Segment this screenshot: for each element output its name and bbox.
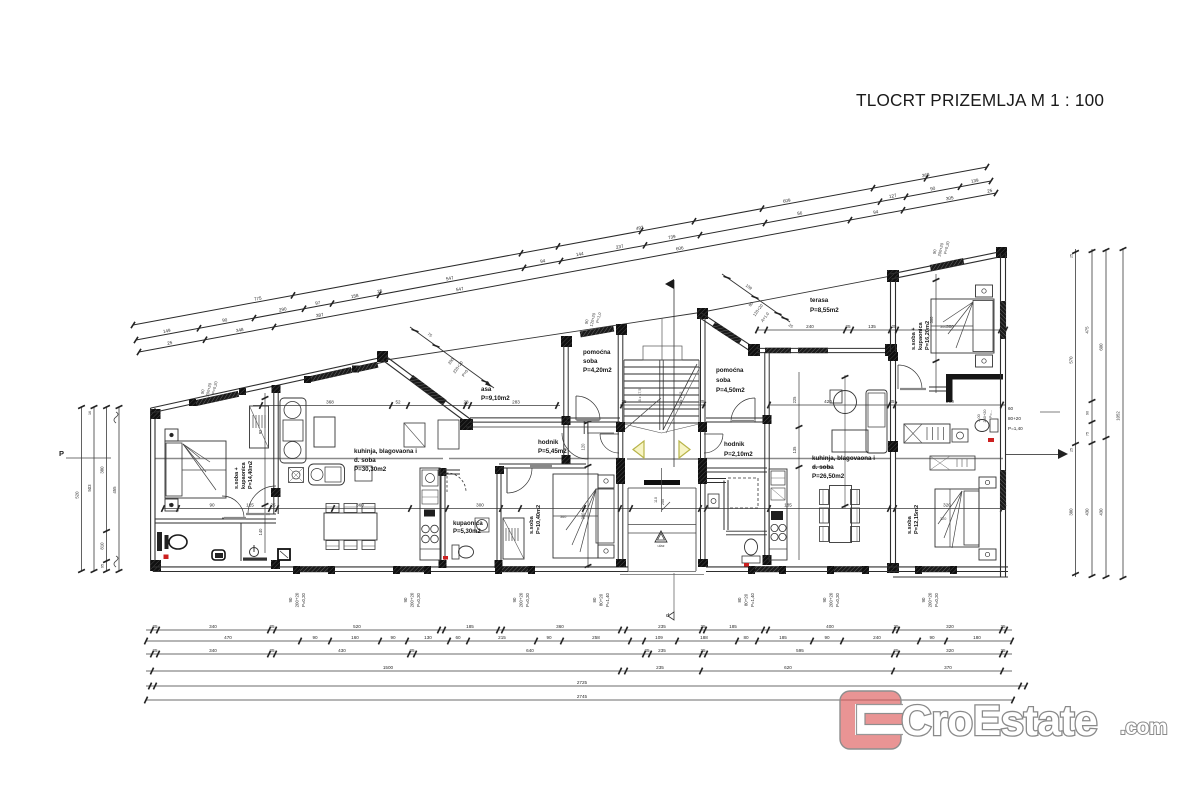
- svg-text:340: 340: [209, 624, 217, 629]
- svg-text:1052: 1052: [1116, 411, 1121, 421]
- svg-text:8 x 17,5: 8 x 17,5: [638, 389, 642, 402]
- svg-text:240: 240: [873, 635, 881, 640]
- svg-text:475: 475: [1085, 326, 1090, 334]
- svg-text:90: 90: [929, 635, 935, 640]
- svg-text:503: 503: [87, 484, 92, 492]
- svg-text:600: 600: [1099, 343, 1104, 351]
- svg-text:52: 52: [395, 400, 401, 405]
- svg-text:200+20: 200+20: [828, 592, 833, 607]
- svg-text:s.soba: s.soba: [907, 515, 913, 534]
- svg-text:188: 188: [700, 635, 708, 640]
- svg-text:28: 28: [463, 400, 469, 405]
- svg-text:250: 250: [661, 499, 665, 505]
- svg-text:kupaonica: kupaonica: [918, 321, 924, 350]
- svg-text:P=0,20: P=0,20: [416, 592, 421, 607]
- svg-text:370: 370: [944, 665, 952, 670]
- svg-text:300: 300: [476, 503, 484, 508]
- svg-text:P=...: P=...: [988, 410, 993, 418]
- svg-text:130: 130: [424, 635, 432, 640]
- svg-text:P=30,30m2: P=30,30m2: [354, 466, 387, 473]
- svg-text:570: 570: [1069, 356, 1074, 364]
- svg-text:75: 75: [1086, 432, 1090, 436]
- svg-text:asa: asa: [481, 386, 492, 393]
- svg-text:90: 90: [312, 635, 318, 640]
- svg-text:340: 340: [209, 648, 217, 653]
- svg-text:430: 430: [338, 648, 346, 653]
- svg-text:215: 215: [498, 635, 506, 640]
- svg-text:25: 25: [269, 624, 275, 629]
- svg-text:d. soba: d. soba: [812, 464, 834, 471]
- svg-text:90: 90: [921, 597, 926, 602]
- svg-text:360: 360: [556, 624, 564, 629]
- svg-text:185: 185: [779, 635, 787, 640]
- svg-text:120: 120: [581, 443, 586, 451]
- svg-text:s.soba +: s.soba +: [911, 327, 917, 350]
- svg-text:P=5,30m2: P=5,30m2: [453, 529, 482, 535]
- svg-text:235: 235: [658, 648, 666, 653]
- svg-text:soba: soba: [716, 377, 731, 384]
- svg-text:25: 25: [1070, 254, 1074, 258]
- svg-text:185: 185: [784, 503, 792, 508]
- svg-text:P=0,20: P=0,20: [525, 592, 530, 607]
- svg-text:90: 90: [546, 635, 552, 640]
- svg-text:110: 110: [654, 497, 658, 503]
- svg-text:soba: soba: [583, 358, 598, 365]
- svg-text:pomoćna: pomoćna: [716, 367, 744, 374]
- svg-text:135: 135: [868, 324, 876, 329]
- svg-text:320: 320: [946, 648, 954, 653]
- svg-text:225: 225: [792, 396, 797, 404]
- svg-text:25: 25: [409, 648, 415, 653]
- svg-text:P=1,40: P=1,40: [750, 592, 755, 607]
- svg-text:80: 80: [743, 635, 749, 640]
- svg-text:90: 90: [824, 635, 830, 640]
- svg-text:kupaonica: kupaonica: [241, 461, 247, 489]
- svg-text:TLOCRT PRIZEMLJA M 1 : 100: TLOCRT PRIZEMLJA M 1 : 100: [856, 90, 1104, 110]
- svg-text:80+20: 80+20: [743, 593, 748, 606]
- svg-text:140: 140: [258, 528, 263, 536]
- svg-text:60: 60: [1008, 406, 1014, 411]
- svg-text:620: 620: [784, 665, 792, 670]
- svg-text:s.soba: s.soba: [529, 515, 535, 534]
- svg-text:2725: 2725: [577, 680, 588, 685]
- svg-text:470: 470: [224, 635, 232, 640]
- svg-text:200+20: 200+20: [927, 592, 932, 607]
- svg-text:90: 90: [390, 635, 396, 640]
- svg-text:380: 380: [100, 466, 105, 474]
- svg-text:90: 90: [822, 597, 827, 602]
- svg-text:P=26,50m2: P=26,50m2: [812, 473, 845, 480]
- svg-text:240: 240: [806, 324, 814, 329]
- svg-text:1500: 1500: [383, 665, 394, 670]
- svg-text:25: 25: [1000, 648, 1006, 653]
- svg-text:235: 235: [658, 624, 666, 629]
- svg-text:80: 80: [592, 597, 597, 602]
- svg-text:640: 640: [526, 648, 534, 653]
- svg-text:P=1,40: P=1,40: [1008, 426, 1023, 431]
- svg-text:P=0,20: P=0,20: [934, 592, 939, 607]
- svg-text:P=0,20: P=0,20: [301, 592, 306, 607]
- svg-text:16: 16: [88, 411, 92, 415]
- svg-text:320: 320: [940, 517, 946, 521]
- svg-text:hodnik: hodnik: [538, 439, 559, 446]
- svg-text:80: 80: [737, 597, 742, 602]
- svg-text:25: 25: [644, 648, 650, 653]
- svg-text:25: 25: [270, 503, 276, 508]
- svg-text:P=12,15m2: P=12,15m2: [914, 505, 920, 534]
- svg-text:P=4,20m2: P=4,20m2: [583, 367, 612, 374]
- svg-text:80+20: 80+20: [1008, 416, 1021, 421]
- svg-text:25: 25: [269, 648, 275, 653]
- svg-text:810: 810: [100, 542, 105, 550]
- svg-text:25: 25: [893, 624, 899, 629]
- svg-text:P=0,20: P=0,20: [835, 592, 840, 607]
- svg-text:90: 90: [403, 597, 408, 602]
- svg-text:pomoćna: pomoćna: [583, 349, 611, 356]
- svg-text:180: 180: [973, 635, 981, 640]
- svg-text:25: 25: [1070, 448, 1074, 452]
- svg-text:ulaz: ulaz: [658, 544, 665, 548]
- svg-text:520: 520: [353, 624, 361, 629]
- svg-text:8 x 17,5: 8 x 17,5: [679, 392, 683, 405]
- svg-text:95: 95: [101, 564, 105, 568]
- svg-text:430: 430: [1099, 508, 1104, 516]
- svg-text:360: 360: [560, 515, 566, 519]
- svg-text:kuhinja, blagovaona i: kuhinja, blagovaona i: [354, 448, 417, 455]
- svg-text:185: 185: [729, 624, 737, 629]
- svg-text:kuhinja, blagovaona i: kuhinja, blagovaona i: [812, 455, 875, 462]
- svg-text:d. soba: d. soba: [354, 457, 376, 464]
- svg-text:80+20: 80+20: [598, 593, 603, 606]
- svg-text:25: 25: [700, 624, 706, 629]
- svg-text:P=16,20m2: P=16,20m2: [925, 321, 931, 350]
- svg-text:90: 90: [209, 503, 215, 508]
- svg-text:P=9,10m2: P=9,10m2: [481, 395, 510, 402]
- svg-text:CroEstate: CroEstate: [901, 698, 1097, 745]
- svg-text:P=14,40m2: P=14,40m2: [248, 461, 254, 489]
- svg-text:109: 109: [655, 635, 663, 640]
- svg-text:25: 25: [152, 648, 158, 653]
- svg-text:P=10,40m2: P=10,40m2: [536, 505, 542, 534]
- svg-text:hodnik: hodnik: [724, 441, 745, 448]
- svg-text:520: 520: [75, 491, 80, 499]
- svg-text:25: 25: [700, 648, 706, 653]
- svg-text:258: 258: [592, 635, 600, 640]
- svg-text:25: 25: [893, 648, 899, 653]
- svg-text:2745: 2745: [577, 694, 588, 699]
- svg-text:300: 300: [940, 325, 946, 329]
- svg-text:380: 380: [1069, 508, 1074, 516]
- svg-text:P=1,40: P=1,40: [605, 592, 610, 607]
- svg-text:90: 90: [1086, 411, 1090, 415]
- svg-text:s.soba +: s.soba +: [234, 467, 240, 489]
- svg-text:200+20: 200+20: [294, 592, 299, 607]
- svg-text:235: 235: [656, 665, 664, 670]
- svg-text:160: 160: [351, 635, 359, 640]
- svg-text:283: 283: [512, 400, 520, 405]
- svg-text:25: 25: [845, 324, 851, 329]
- svg-text:P=2,10m2: P=2,10m2: [724, 451, 753, 458]
- svg-text:135: 135: [792, 446, 797, 454]
- svg-text:368: 368: [326, 400, 334, 405]
- svg-text:595: 595: [796, 648, 804, 653]
- svg-text:90: 90: [512, 597, 517, 602]
- svg-text:terasa: terasa: [810, 297, 829, 304]
- svg-text:200+20: 200+20: [518, 592, 523, 607]
- svg-text:320: 320: [946, 624, 954, 629]
- svg-text:kupaonica: kupaonica: [453, 521, 483, 527]
- svg-text:P=5,45m2: P=5,45m2: [538, 448, 567, 455]
- svg-text:90: 90: [288, 597, 293, 602]
- svg-text:200+20: 200+20: [409, 592, 414, 607]
- svg-text:455: 455: [112, 486, 117, 494]
- svg-text:60: 60: [455, 635, 461, 640]
- svg-text:300: 300: [946, 324, 954, 329]
- svg-text:P=8,55m2: P=8,55m2: [810, 307, 839, 314]
- svg-text:25: 25: [152, 624, 158, 629]
- svg-text:P: P: [59, 449, 64, 458]
- svg-text:185: 185: [466, 624, 474, 629]
- svg-text:25: 25: [1000, 624, 1006, 629]
- svg-text:430: 430: [1085, 508, 1090, 516]
- svg-text:25: 25: [891, 324, 897, 329]
- svg-text:400: 400: [826, 624, 834, 629]
- svg-text:P=4,50m2: P=4,50m2: [716, 387, 745, 394]
- svg-text:420: 420: [824, 399, 832, 404]
- svg-text:.com: .com: [1120, 716, 1167, 739]
